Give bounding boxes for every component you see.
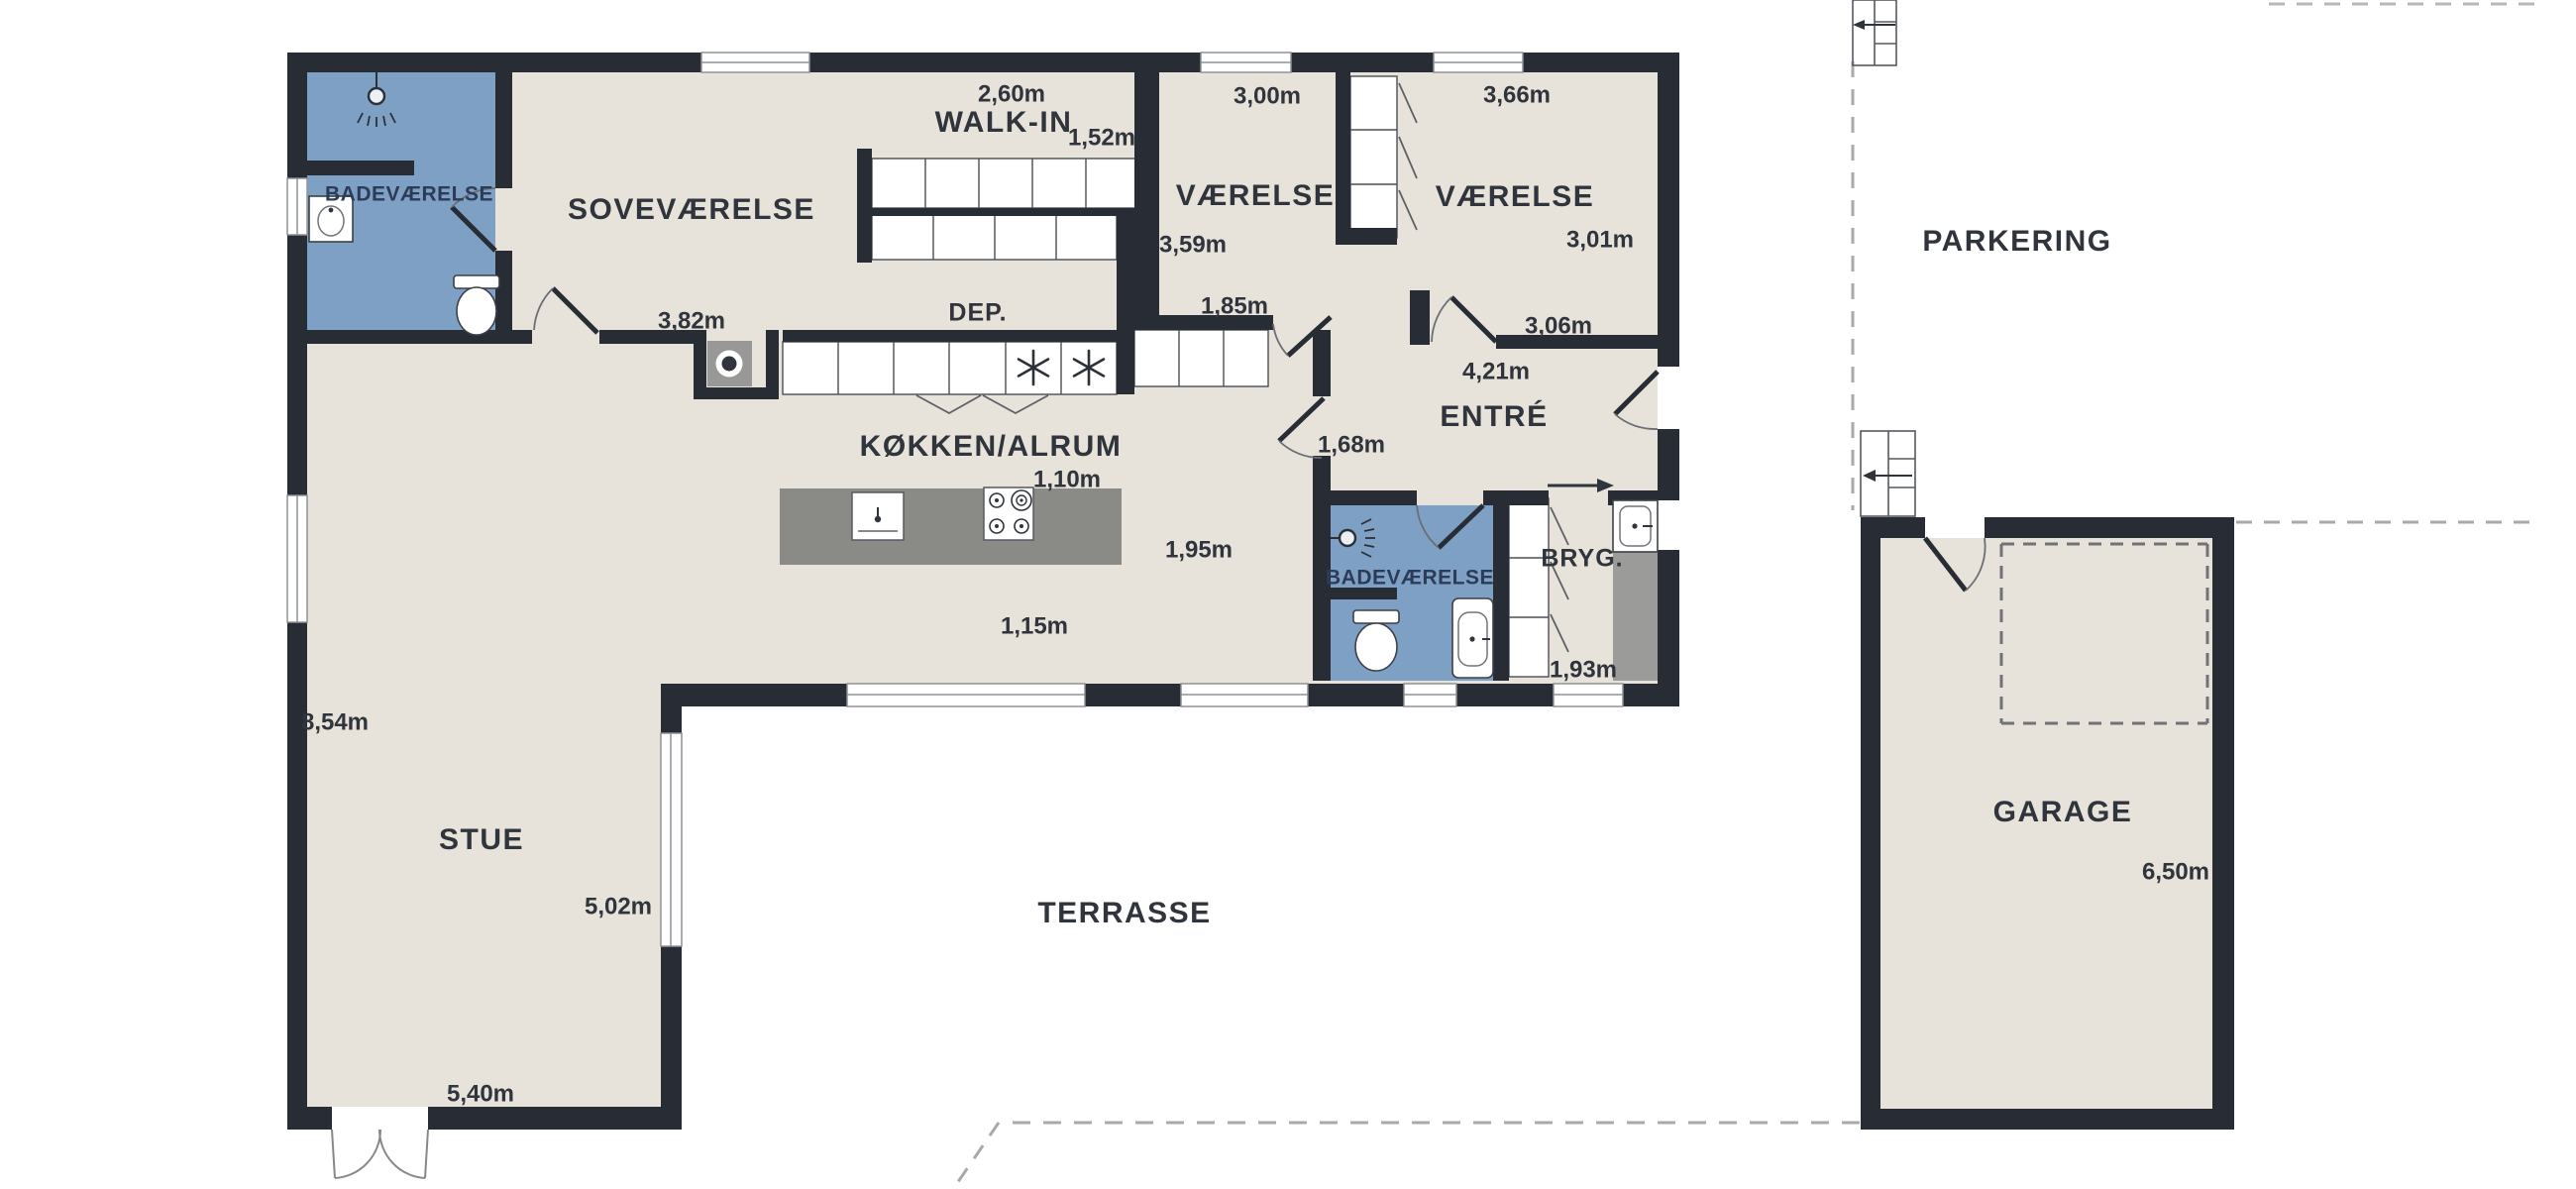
label-room1: VÆRELSE — [1176, 179, 1336, 212]
measure-walkin-depth: 1,52m — [1068, 124, 1135, 151]
window — [287, 178, 307, 235]
entry-steps-icon — [1853, 0, 1896, 65]
terrace-dashed-diagonal — [953, 1123, 999, 1189]
sink-icon — [1452, 598, 1493, 678]
measure-living-width: 5,40m — [447, 1080, 514, 1107]
label-living: STUE — [439, 823, 524, 856]
utility-closet — [1509, 498, 1549, 677]
window — [1404, 684, 1456, 706]
label-walkin: WALK-IN — [935, 106, 1073, 139]
hall-cabinets — [1134, 330, 1268, 386]
sink-icon — [852, 492, 904, 540]
measure-island-width: 1,10m — [1033, 466, 1101, 492]
measure-entry-width: 4,21m — [1462, 358, 1530, 384]
label-terrace: TERRASSE — [1037, 897, 1211, 929]
label-entry: ENTRÉ — [1440, 399, 1548, 433]
walkin-wardrobe — [872, 159, 1141, 208]
floor-plan: BADEVÆRELSE SOVEVÆRELSE WALK-IN DEP. VÆR… — [0, 0, 2576, 1189]
label-parking: PARKERING — [1922, 225, 2111, 258]
label-bathroom2: BADEVÆRELSE — [1326, 567, 1494, 590]
window — [1201, 53, 1291, 72]
label-kitchen: KØKKEN/ALRUM — [860, 430, 1123, 463]
label-bathroom1: BADEVÆRELSE — [325, 183, 493, 206]
entry-steps-icon — [1861, 431, 1915, 516]
measure-kitchen-bottom: 1,15m — [1001, 612, 1068, 639]
stove-burners-icon — [984, 487, 1033, 540]
measure-bedroom-width: 3,82m — [658, 307, 725, 334]
measure-entry-top: 3,06m — [1525, 312, 1592, 339]
rooms-closet — [1350, 76, 1397, 238]
measure-kitchen-right: 1,95m — [1165, 536, 1233, 563]
measure-walkin-width: 2,60m — [978, 80, 1045, 107]
measure-garage-depth: 6,50m — [2142, 858, 2209, 885]
measure-utility-depth: 1,93m — [1550, 656, 1617, 683]
floor-plan-canvas: BADEVÆRELSE SOVEVÆRELSE WALK-IN DEP. VÆR… — [0, 0, 2576, 1189]
door-terrace-double — [332, 1130, 428, 1178]
window — [661, 733, 682, 946]
label-utility: BRYG. — [1541, 545, 1623, 573]
window — [1434, 53, 1523, 72]
measure-room1-width: 3,00m — [1234, 82, 1301, 109]
kitchen-island — [780, 487, 1122, 565]
measure-living-right: 5,02m — [585, 893, 652, 919]
window — [1554, 684, 1623, 706]
label-room2: VÆRELSE — [1436, 180, 1595, 213]
window — [701, 53, 809, 72]
measure-entry-left: 1,68m — [1318, 431, 1385, 458]
window — [1181, 684, 1308, 706]
label-garage: GARAGE — [1993, 796, 2133, 828]
measure-living-height: 8,54m — [301, 708, 369, 735]
measure-room2-depth: 3,01m — [1566, 226, 1634, 253]
window — [847, 684, 1085, 706]
window — [287, 495, 307, 622]
toilet-icon — [454, 275, 499, 335]
label-bedroom: SOVEVÆRELSE — [568, 193, 815, 226]
toilet-icon — [1353, 610, 1399, 671]
washing-machine-icon — [707, 341, 752, 386]
measure-hall-width: 1,85m — [1201, 292, 1268, 319]
measure-room1-depth: 3,59m — [1159, 231, 1227, 258]
measure-room2-width: 3,66m — [1483, 81, 1551, 108]
label-storage: DEP. — [948, 299, 1007, 327]
